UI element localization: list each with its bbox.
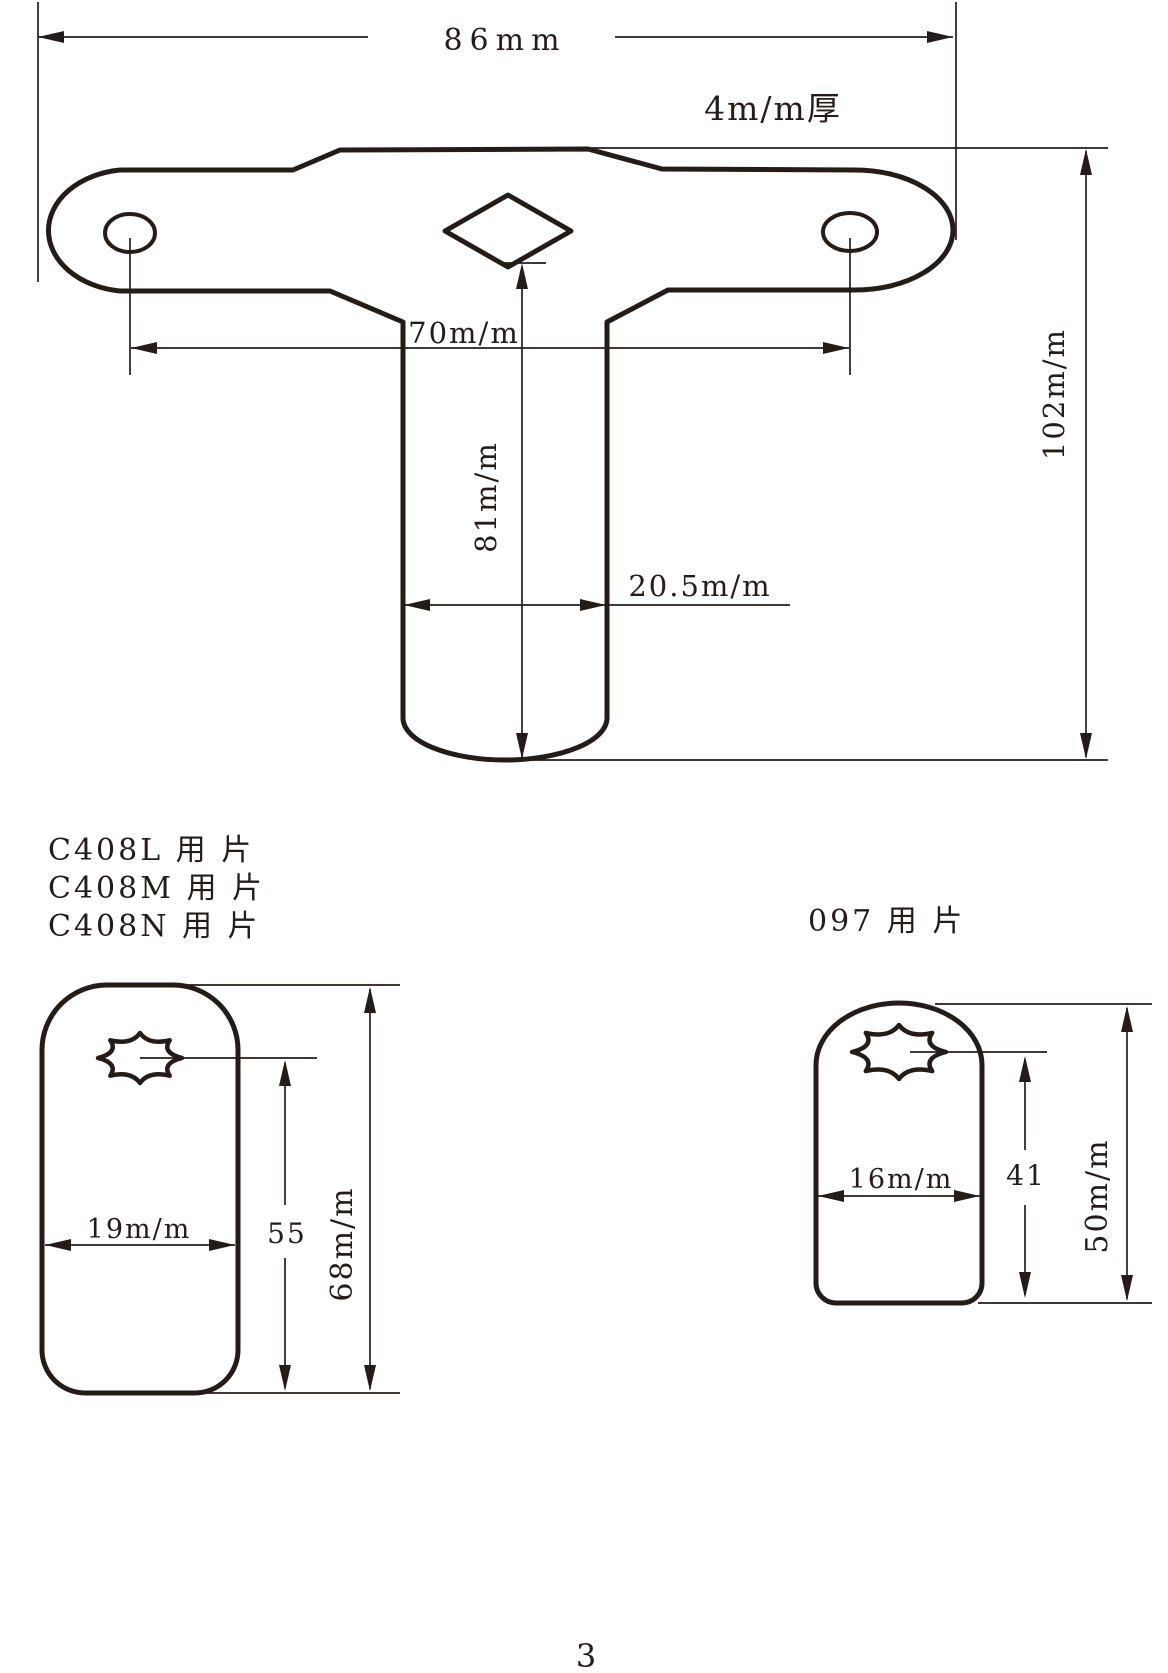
arrowhead-up-icon bbox=[364, 987, 376, 1013]
dim-overall-height: 102m/m bbox=[528, 148, 1108, 760]
dim-label-stem-width: 20.5m/m bbox=[628, 569, 771, 603]
arrowhead-left-icon bbox=[404, 599, 430, 611]
dim-label-overall-height: 102m/m bbox=[1037, 328, 1071, 460]
top-view: 86mm 4m/m厚 70m/m 81m/m 20.5m/m bbox=[38, 2, 1108, 760]
dim-label-overall-height: 68m/m bbox=[325, 1186, 360, 1301]
dim-label-body-width: 19m/m bbox=[87, 1214, 192, 1245]
arrowhead-down-icon bbox=[1121, 1275, 1133, 1301]
technical-drawing-canvas: 86mm 4m/m厚 70m/m 81m/m 20.5m/m bbox=[0, 0, 1168, 1673]
arrowhead-right-icon bbox=[823, 342, 849, 354]
part-label-c408n: C408N 用 片 bbox=[48, 909, 261, 944]
dim-overall-height: 50m/m bbox=[935, 1004, 1152, 1303]
bottom-left-view: C408L 用 片 C408M 用 片 C408N 用 片 55 19m/m bbox=[42, 833, 400, 1393]
arrowhead-down-icon bbox=[1080, 733, 1092, 759]
part-label-c408m: C408M 用 片 bbox=[48, 871, 265, 906]
dim-label-body-width: 16m/m bbox=[849, 1164, 954, 1195]
dim-body-width: 19m/m bbox=[45, 1214, 235, 1251]
dim-stem-width: 20.5m/m bbox=[404, 569, 790, 611]
arrowhead-up-icon bbox=[1080, 149, 1092, 175]
drawing-page: 86mm 4m/m厚 70m/m 81m/m 20.5m/m bbox=[0, 0, 1168, 1673]
p097-part-outline bbox=[816, 1003, 982, 1303]
dim-label-overall-height: 50m/m bbox=[1080, 1138, 1115, 1253]
dim-label-overall-width: 86mm bbox=[443, 23, 566, 58]
arrowhead-right-icon bbox=[580, 599, 606, 611]
arrowhead-right-icon bbox=[927, 31, 953, 43]
dim-body-width: 16m/m bbox=[818, 1164, 980, 1202]
arrowhead-down-icon bbox=[1019, 1272, 1031, 1298]
dim-label-hole-spacing: 70m/m bbox=[408, 316, 520, 350]
part-label-097: 097 用 片 bbox=[808, 904, 965, 939]
diamond-hole bbox=[445, 195, 571, 267]
c408-part-outline bbox=[42, 985, 238, 1393]
dim-overall-width: 86mm bbox=[38, 2, 956, 282]
dim-label-hole-to-bottom: 41 bbox=[1006, 1159, 1046, 1192]
arrowhead-up-icon bbox=[516, 263, 528, 289]
page-number: 3 bbox=[576, 1637, 596, 1673]
arrowhead-up-icon bbox=[279, 1060, 291, 1086]
arrowhead-left-icon bbox=[45, 1239, 71, 1251]
arrowhead-left-icon bbox=[818, 1190, 844, 1202]
arrowhead-down-icon bbox=[279, 1365, 291, 1391]
arrowhead-right-icon bbox=[209, 1239, 235, 1251]
dim-label-stem-length: 81m/m bbox=[469, 441, 503, 553]
arrowhead-down-icon bbox=[364, 1365, 376, 1391]
arrowhead-left-icon bbox=[38, 31, 64, 43]
arrowhead-left-icon bbox=[131, 342, 157, 354]
arrowhead-right-icon bbox=[954, 1190, 980, 1202]
arrowhead-up-icon bbox=[1121, 1006, 1133, 1032]
dim-label-thickness: 4m/m厚 bbox=[704, 89, 842, 128]
arrowhead-down-icon bbox=[516, 733, 528, 759]
part-label-c408l: C408L 用 片 bbox=[48, 833, 254, 868]
dim-overall-height: 68m/m bbox=[185, 985, 400, 1393]
dim-label-hole-to-bottom: 55 bbox=[267, 1217, 307, 1250]
bottom-right-view: 097 用 片 41 16m/m 50m/m bbox=[808, 904, 1152, 1303]
arrowhead-up-icon bbox=[1019, 1056, 1031, 1082]
